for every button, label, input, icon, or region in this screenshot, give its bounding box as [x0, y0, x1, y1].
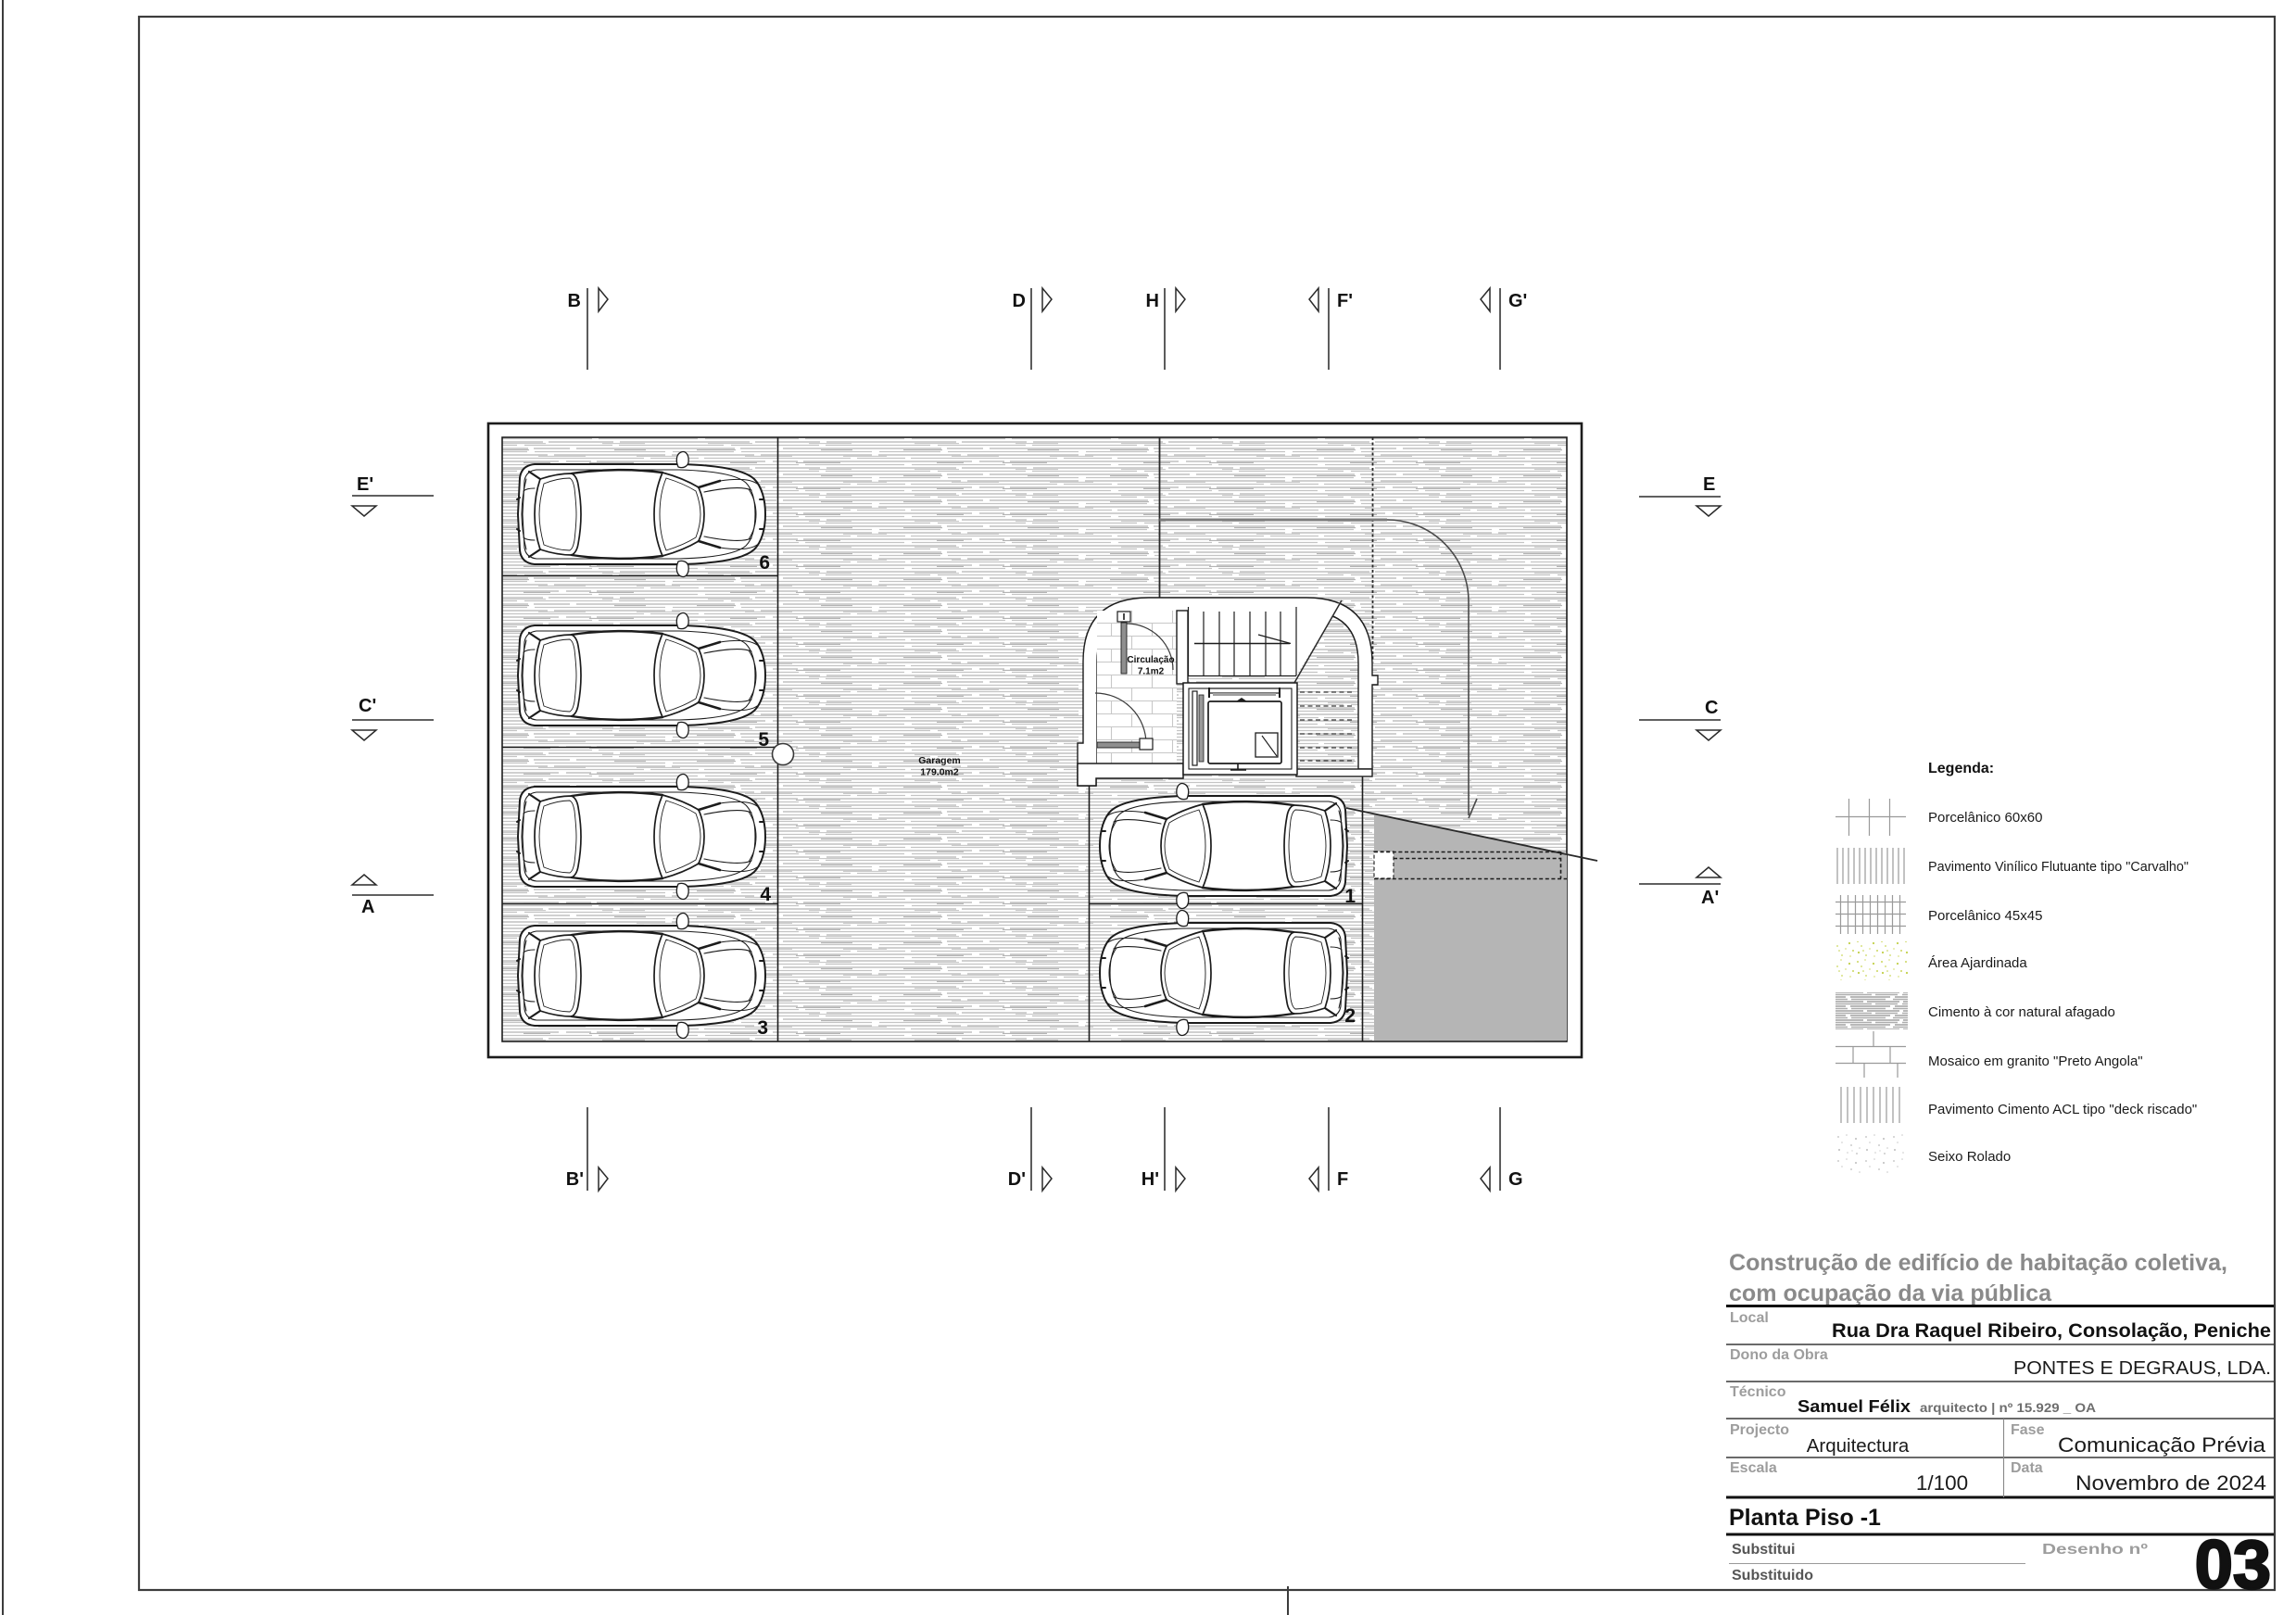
svg-text:4: 4 — [760, 884, 771, 905]
svg-text:Construção de edifício de habi: Construção de edifício de habitação cole… — [1729, 1250, 2227, 1276]
svg-text:Legenda:: Legenda: — [1928, 761, 1994, 776]
svg-text:Substituido: Substituido — [1732, 1568, 1813, 1583]
svg-text:Porcelânico 45x45: Porcelânico 45x45 — [1928, 908, 2042, 924]
svg-text:B': B' — [566, 1169, 584, 1190]
svg-text:H': H' — [1142, 1169, 1159, 1190]
svg-text:7.1m2: 7.1m2 — [1138, 667, 1165, 677]
svg-text:F': F' — [1337, 291, 1353, 311]
svg-text:Samuel Félix: Samuel Félix — [1798, 1397, 1911, 1416]
svg-text:G': G' — [1508, 291, 1527, 311]
svg-text:Rua Dra Raquel Ribeiro, Consol: Rua Dra Raquel Ribeiro, Consolação, Peni… — [1832, 1320, 2271, 1342]
svg-text:B: B — [568, 291, 581, 311]
svg-text:5: 5 — [758, 729, 769, 751]
svg-text:Cimento à cor natural afagado: Cimento à cor natural afagado — [1928, 1004, 2115, 1020]
svg-text:Pavimento Vinílico Flutuante t: Pavimento Vinílico Flutuante tipo "Carva… — [1928, 859, 2189, 875]
svg-text:Desenho nº: Desenho nº — [2042, 1542, 2148, 1558]
svg-text:Mosaico em granito "Preto Ango: Mosaico em granito "Preto Angola" — [1928, 1054, 2143, 1069]
svg-text:1: 1 — [1344, 886, 1356, 907]
svg-text:1/100: 1/100 — [1916, 1471, 1968, 1495]
svg-text:6: 6 — [759, 552, 770, 574]
svg-text:com ocupação da via pública: com ocupação da via pública — [1729, 1281, 2052, 1306]
svg-text:179.0m2: 179.0m2 — [920, 767, 959, 778]
svg-text:D: D — [1013, 291, 1026, 311]
svg-text:Seixo Rolado: Seixo Rolado — [1928, 1149, 2011, 1165]
svg-text:Técnico: Técnico — [1730, 1384, 1786, 1400]
svg-text:A: A — [361, 897, 374, 917]
svg-text:Escala: Escala — [1730, 1460, 1777, 1476]
svg-text:arquitecto | nº 15.929 _ OA: arquitecto | nº 15.929 _ OA — [1920, 1401, 2096, 1415]
svg-text:Projecto: Projecto — [1730, 1422, 1789, 1438]
svg-text:Garagem: Garagem — [918, 755, 961, 766]
svg-text:H: H — [1146, 291, 1159, 311]
svg-text:Planta Piso -1: Planta Piso -1 — [1729, 1505, 1881, 1531]
svg-text:Local: Local — [1730, 1310, 1769, 1326]
svg-text:Dono da Obra: Dono da Obra — [1730, 1347, 1828, 1363]
svg-text:PONTES E DEGRAUS, LDA.: PONTES E DEGRAUS, LDA. — [2013, 1358, 2271, 1379]
svg-text:A': A' — [1701, 888, 1719, 908]
svg-text:E': E' — [357, 474, 373, 495]
svg-text:Área Ajardinada: Área Ajardinada — [1928, 955, 2027, 971]
svg-text:Fase: Fase — [2011, 1422, 2045, 1438]
svg-text:G: G — [1508, 1169, 1523, 1190]
svg-text:2: 2 — [1344, 1005, 1356, 1027]
svg-text:Substitui: Substitui — [1732, 1542, 1795, 1558]
svg-text:Comunicação Prévia: Comunicação Prévia — [2058, 1433, 2266, 1457]
svg-text:3: 3 — [757, 1017, 768, 1039]
svg-text:Pavimento Cimento ACL tipo "de: Pavimento Cimento ACL tipo "deck riscado… — [1928, 1102, 2197, 1117]
svg-text:D': D' — [1008, 1169, 1026, 1190]
svg-text:Circulação: Circulação — [1127, 655, 1174, 665]
svg-text:03: 03 — [2195, 1526, 2271, 1603]
svg-text:Data: Data — [2011, 1460, 2043, 1476]
svg-text:Arquitectura: Arquitectura — [1807, 1435, 1910, 1457]
svg-text:Porcelânico 60x60: Porcelânico 60x60 — [1928, 810, 2042, 826]
svg-text:E: E — [1703, 474, 1715, 495]
svg-text:Novembro de 2024: Novembro de 2024 — [2075, 1471, 2266, 1495]
svg-text:C': C' — [359, 696, 376, 716]
svg-text:F: F — [1337, 1169, 1348, 1190]
svg-text:C: C — [1705, 698, 1718, 718]
